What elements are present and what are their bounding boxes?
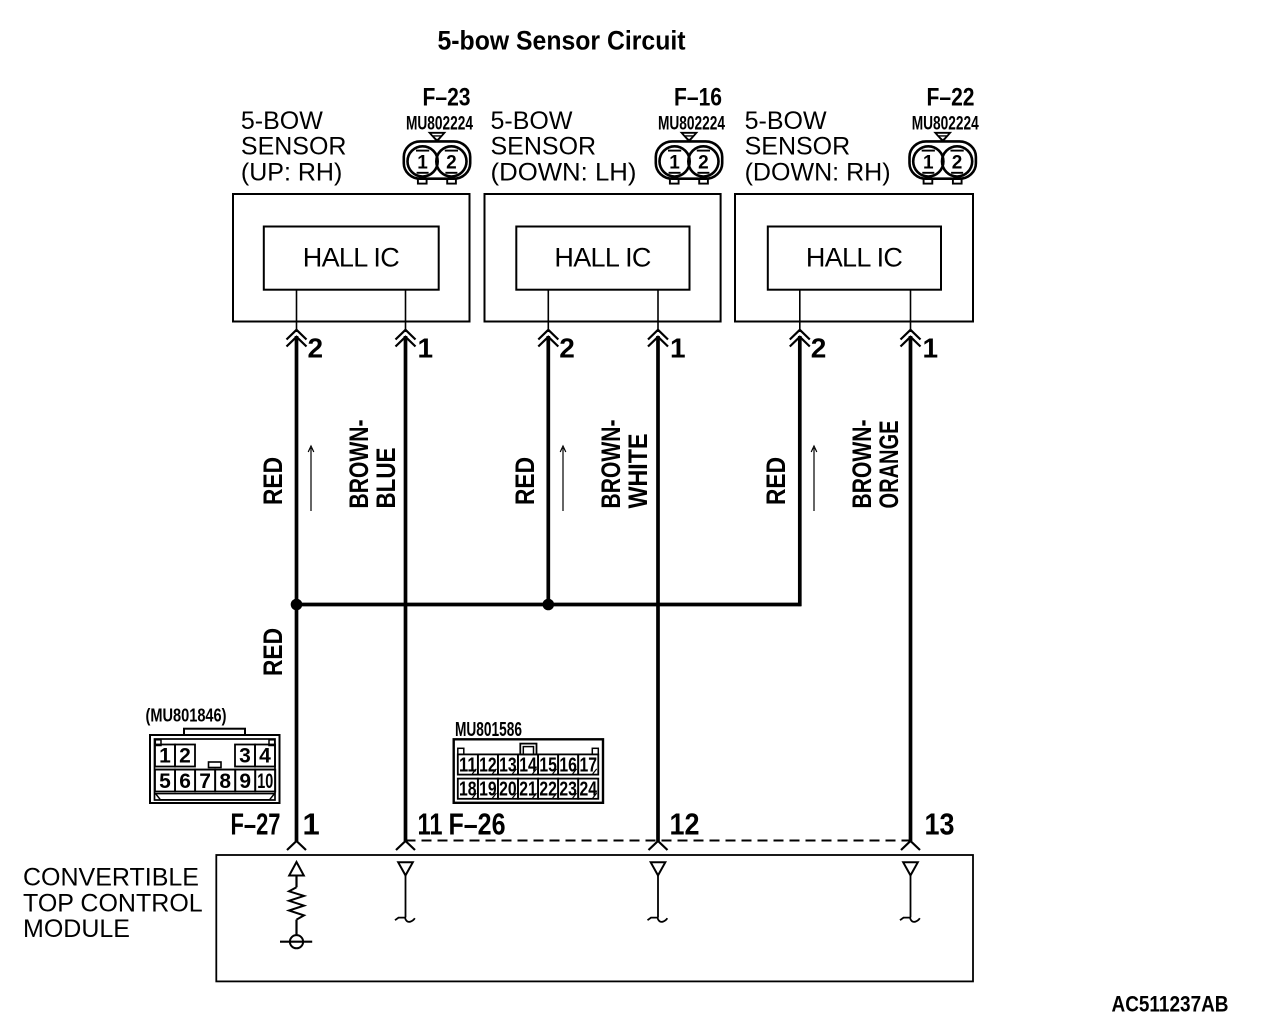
svg-text:14: 14 <box>519 754 537 776</box>
svg-text:MU802224: MU802224 <box>912 113 979 134</box>
svg-text:RED: RED <box>258 628 288 676</box>
svg-text:5-BOW: 5-BOW <box>491 107 573 135</box>
svg-text:WHITE: WHITE <box>623 434 653 509</box>
svg-text:2: 2 <box>952 152 963 173</box>
svg-text:1: 1 <box>159 745 171 768</box>
svg-text:19: 19 <box>479 779 497 801</box>
svg-text:18: 18 <box>459 779 477 801</box>
svg-text:13: 13 <box>925 807 955 842</box>
svg-text:1: 1 <box>417 152 428 173</box>
svg-text:5-BOW: 5-BOW <box>241 107 323 135</box>
svg-text:SENSOR: SENSOR <box>241 133 347 161</box>
svg-text:9: 9 <box>239 770 251 793</box>
svg-text:RED: RED <box>510 457 540 505</box>
svg-text:12: 12 <box>670 807 700 842</box>
svg-text:AC511237AB: AC511237AB <box>1112 991 1229 1016</box>
svg-text:1: 1 <box>923 152 934 173</box>
svg-text:HALL IC: HALL IC <box>303 243 400 273</box>
svg-text:22: 22 <box>539 779 557 801</box>
svg-text:8: 8 <box>219 770 231 793</box>
svg-text:F–27: F–27 <box>231 807 281 842</box>
svg-text:2: 2 <box>698 152 709 173</box>
svg-text:HALL IC: HALL IC <box>554 243 651 273</box>
svg-text:20: 20 <box>499 779 517 801</box>
svg-text:2: 2 <box>446 152 457 173</box>
svg-text:MU802224: MU802224 <box>658 113 725 134</box>
svg-text:1: 1 <box>923 333 939 364</box>
svg-text:MODULE: MODULE <box>23 915 130 943</box>
svg-text:24: 24 <box>579 779 597 801</box>
svg-text:RED: RED <box>258 457 288 505</box>
svg-text:1: 1 <box>418 333 434 364</box>
svg-text:3: 3 <box>239 745 251 768</box>
svg-text:23: 23 <box>559 779 577 801</box>
svg-text:2: 2 <box>179 745 191 768</box>
svg-text:1: 1 <box>670 333 686 364</box>
svg-text:F–16: F–16 <box>674 84 722 112</box>
svg-text:BROWN-: BROWN- <box>344 420 374 509</box>
svg-text:16: 16 <box>559 754 577 776</box>
svg-text:F–26: F–26 <box>449 807 506 842</box>
svg-text:15: 15 <box>539 754 557 776</box>
svg-text:F–23: F–23 <box>423 84 471 112</box>
svg-text:21: 21 <box>519 779 537 801</box>
svg-text:BROWN-: BROWN- <box>847 420 877 509</box>
svg-text:RED: RED <box>761 457 791 505</box>
svg-text:F–22: F–22 <box>927 84 975 112</box>
svg-text:10: 10 <box>257 770 273 793</box>
svg-text:4: 4 <box>259 745 271 768</box>
svg-text:(DOWN: LH): (DOWN: LH) <box>491 158 637 186</box>
svg-text:(MU801846): (MU801846) <box>146 706 227 726</box>
svg-text:7: 7 <box>199 770 211 793</box>
svg-text:(UP: RH): (UP: RH) <box>241 158 342 186</box>
svg-text:11: 11 <box>459 754 477 776</box>
svg-text:2: 2 <box>308 333 324 364</box>
svg-text:(DOWN: RH): (DOWN: RH) <box>745 158 891 186</box>
svg-text:12: 12 <box>479 754 497 776</box>
svg-text:MU802224: MU802224 <box>406 113 473 134</box>
svg-text:CONVERTIBLE: CONVERTIBLE <box>23 864 199 892</box>
svg-text:SENSOR: SENSOR <box>745 133 851 161</box>
svg-text:13: 13 <box>499 754 517 776</box>
svg-text:1: 1 <box>303 807 320 842</box>
svg-text:5-bow Sensor Circuit: 5-bow Sensor Circuit <box>438 26 686 56</box>
svg-text:17: 17 <box>579 754 597 776</box>
svg-text:5: 5 <box>159 770 171 793</box>
svg-text:2: 2 <box>559 333 575 364</box>
svg-text:MU801586: MU801586 <box>455 719 522 741</box>
svg-text:TOP CONTROL: TOP CONTROL <box>23 889 203 917</box>
svg-text:1: 1 <box>669 152 680 173</box>
svg-text:6: 6 <box>179 770 191 793</box>
svg-text:BLUE: BLUE <box>371 448 401 509</box>
svg-text:11: 11 <box>418 807 443 842</box>
svg-text:ORANGE: ORANGE <box>874 421 904 509</box>
svg-text:5-BOW: 5-BOW <box>745 107 827 135</box>
svg-text:BROWN-: BROWN- <box>596 420 626 509</box>
svg-text:HALL IC: HALL IC <box>806 243 903 273</box>
svg-text:SENSOR: SENSOR <box>491 133 597 161</box>
svg-text:2: 2 <box>811 333 827 364</box>
